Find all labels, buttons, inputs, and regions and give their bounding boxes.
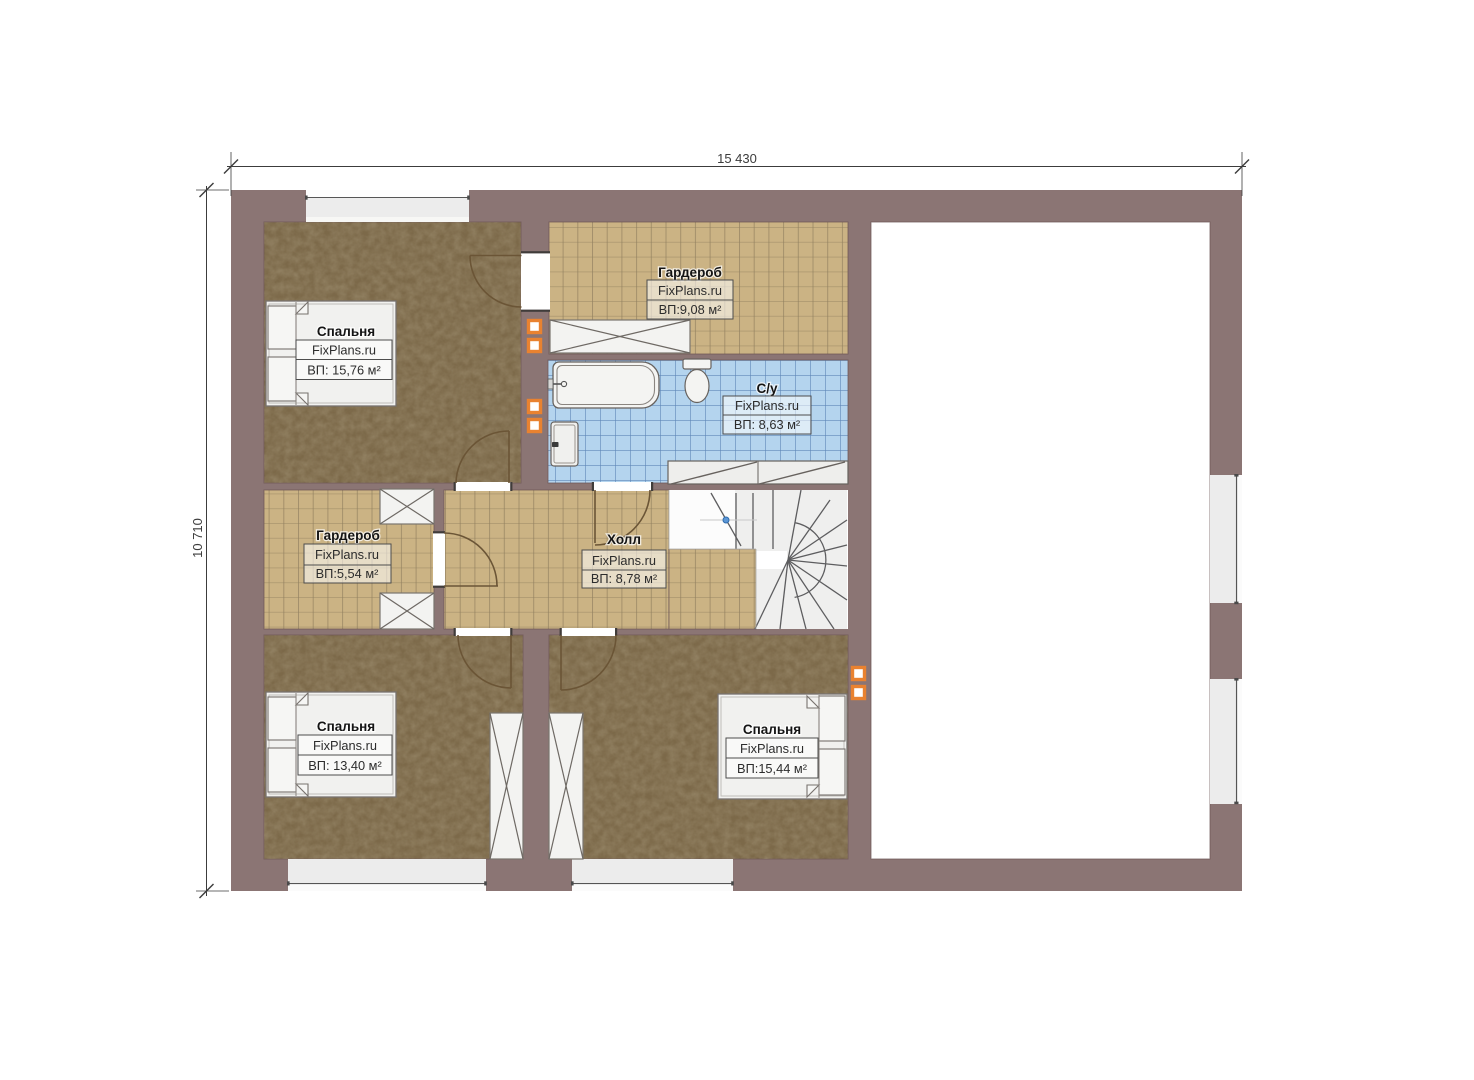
svg-text:ВП:9,08 м²: ВП:9,08 м² <box>659 302 723 317</box>
svg-text:Гардероб: Гардероб <box>658 265 722 280</box>
svg-text:10 710: 10 710 <box>190 518 205 558</box>
svg-text:ВП: 8,78 м²: ВП: 8,78 м² <box>591 571 658 586</box>
svg-text:Спальня: Спальня <box>317 719 375 734</box>
svg-text:Спальня: Спальня <box>743 722 801 737</box>
svg-text:FixPlans.ru: FixPlans.ru <box>312 343 376 358</box>
svg-text:FixPlans.ru: FixPlans.ru <box>740 741 804 756</box>
svg-text:FixPlans.ru: FixPlans.ru <box>315 547 379 562</box>
svg-text:С/у: С/у <box>756 381 778 396</box>
svg-text:ВП: 8,63 м²: ВП: 8,63 м² <box>734 417 801 432</box>
svg-text:ВП:5,54 м²: ВП:5,54 м² <box>316 566 380 581</box>
svg-text:ВП: 13,40 м²: ВП: 13,40 м² <box>308 758 382 773</box>
svg-text:15 430: 15 430 <box>717 151 757 166</box>
svg-text:Холл: Холл <box>607 532 641 547</box>
svg-text:FixPlans.ru: FixPlans.ru <box>658 283 722 298</box>
svg-text:FixPlans.ru: FixPlans.ru <box>735 398 799 413</box>
svg-text:ВП:15,44 м²: ВП:15,44 м² <box>737 761 808 776</box>
svg-text:Спальня: Спальня <box>317 324 375 339</box>
svg-text:FixPlans.ru: FixPlans.ru <box>592 553 656 568</box>
svg-text:ВП: 15,76 м²: ВП: 15,76 м² <box>307 363 381 378</box>
svg-text:FixPlans.ru: FixPlans.ru <box>313 738 377 753</box>
svg-text:Гардероб: Гардероб <box>316 528 380 543</box>
